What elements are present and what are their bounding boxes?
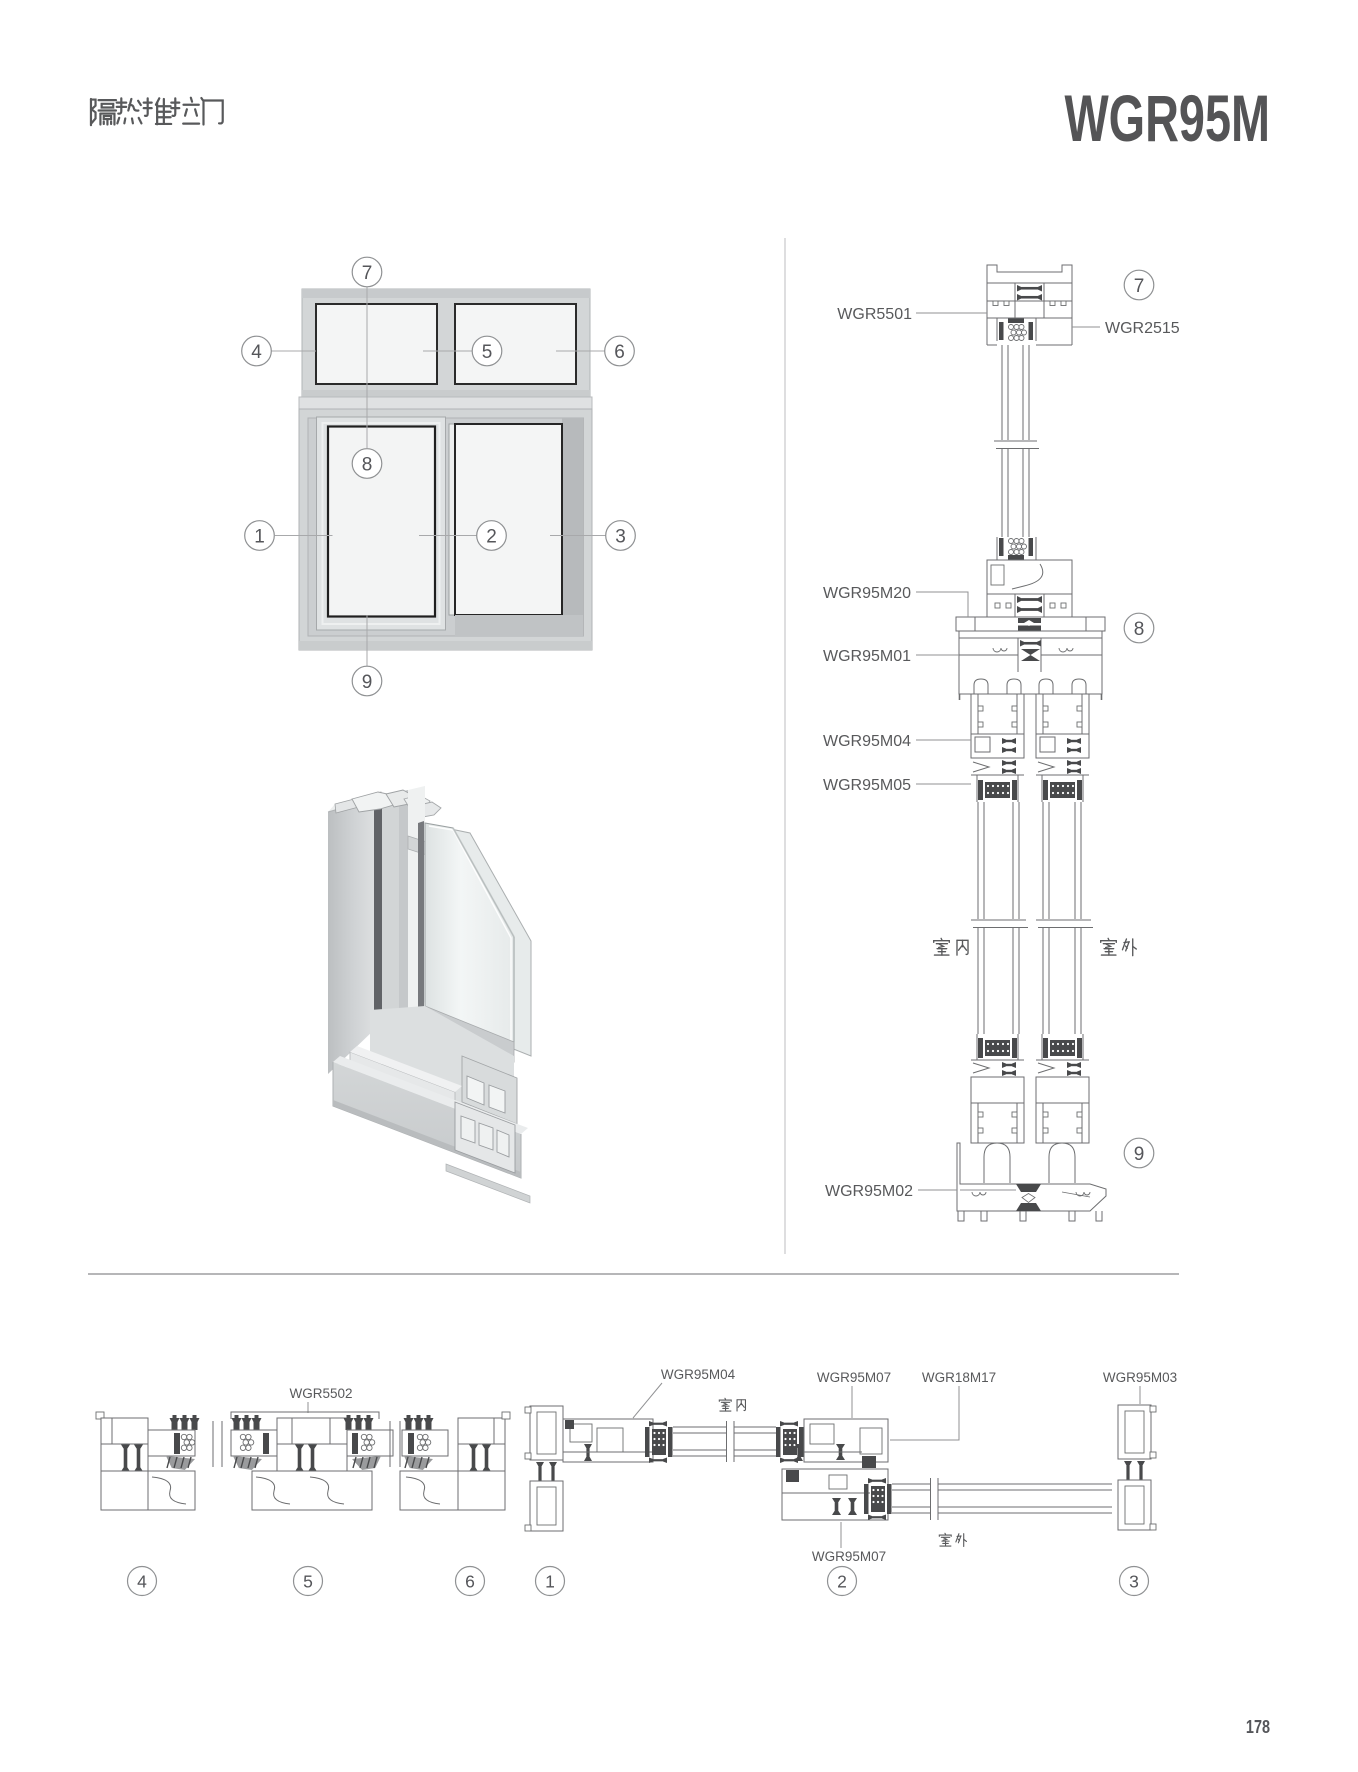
svg-text:WGR18M17: WGR18M17 (922, 1370, 996, 1385)
svg-text:WGR95M04: WGR95M04 (823, 733, 911, 750)
svg-text:WGR95M: WGR95M (1064, 82, 1270, 156)
svg-text:WGR95M05: WGR95M05 (823, 777, 911, 794)
svg-text:9: 9 (362, 672, 373, 693)
svg-text:4: 4 (251, 342, 262, 363)
svg-text:3: 3 (615, 526, 626, 547)
svg-text:7: 7 (362, 263, 373, 284)
svg-text:WGR2515: WGR2515 (1105, 320, 1180, 337)
svg-text:5: 5 (482, 342, 493, 363)
svg-text:WGR95M01: WGR95M01 (823, 648, 911, 665)
svg-text:WGR95M07: WGR95M07 (817, 1370, 891, 1385)
svg-text:WGR95M02: WGR95M02 (825, 1183, 913, 1200)
svg-text:WGR95M07: WGR95M07 (812, 1549, 886, 1564)
svg-text:WGR95M03: WGR95M03 (1103, 1370, 1177, 1385)
svg-text:8: 8 (362, 454, 373, 475)
svg-text:2: 2 (486, 526, 497, 547)
svg-text:1: 1 (545, 1571, 555, 1591)
svg-text:9: 9 (1134, 1144, 1145, 1165)
svg-text:3: 3 (1129, 1571, 1139, 1591)
svg-text:6: 6 (465, 1571, 475, 1591)
svg-text:WGR95M04: WGR95M04 (661, 1367, 736, 1382)
svg-text:178: 178 (1246, 1716, 1270, 1737)
svg-text:6: 6 (614, 342, 625, 363)
svg-text:WGR95M20: WGR95M20 (823, 585, 911, 602)
svg-text:4: 4 (137, 1571, 147, 1591)
svg-text:WGR5502: WGR5502 (289, 1386, 352, 1401)
svg-text:8: 8 (1134, 619, 1145, 640)
svg-text:1: 1 (254, 526, 265, 547)
svg-text:5: 5 (303, 1571, 313, 1591)
svg-text:WGR5501: WGR5501 (837, 306, 912, 323)
svg-text:7: 7 (1134, 276, 1145, 297)
svg-text:2: 2 (837, 1571, 847, 1591)
